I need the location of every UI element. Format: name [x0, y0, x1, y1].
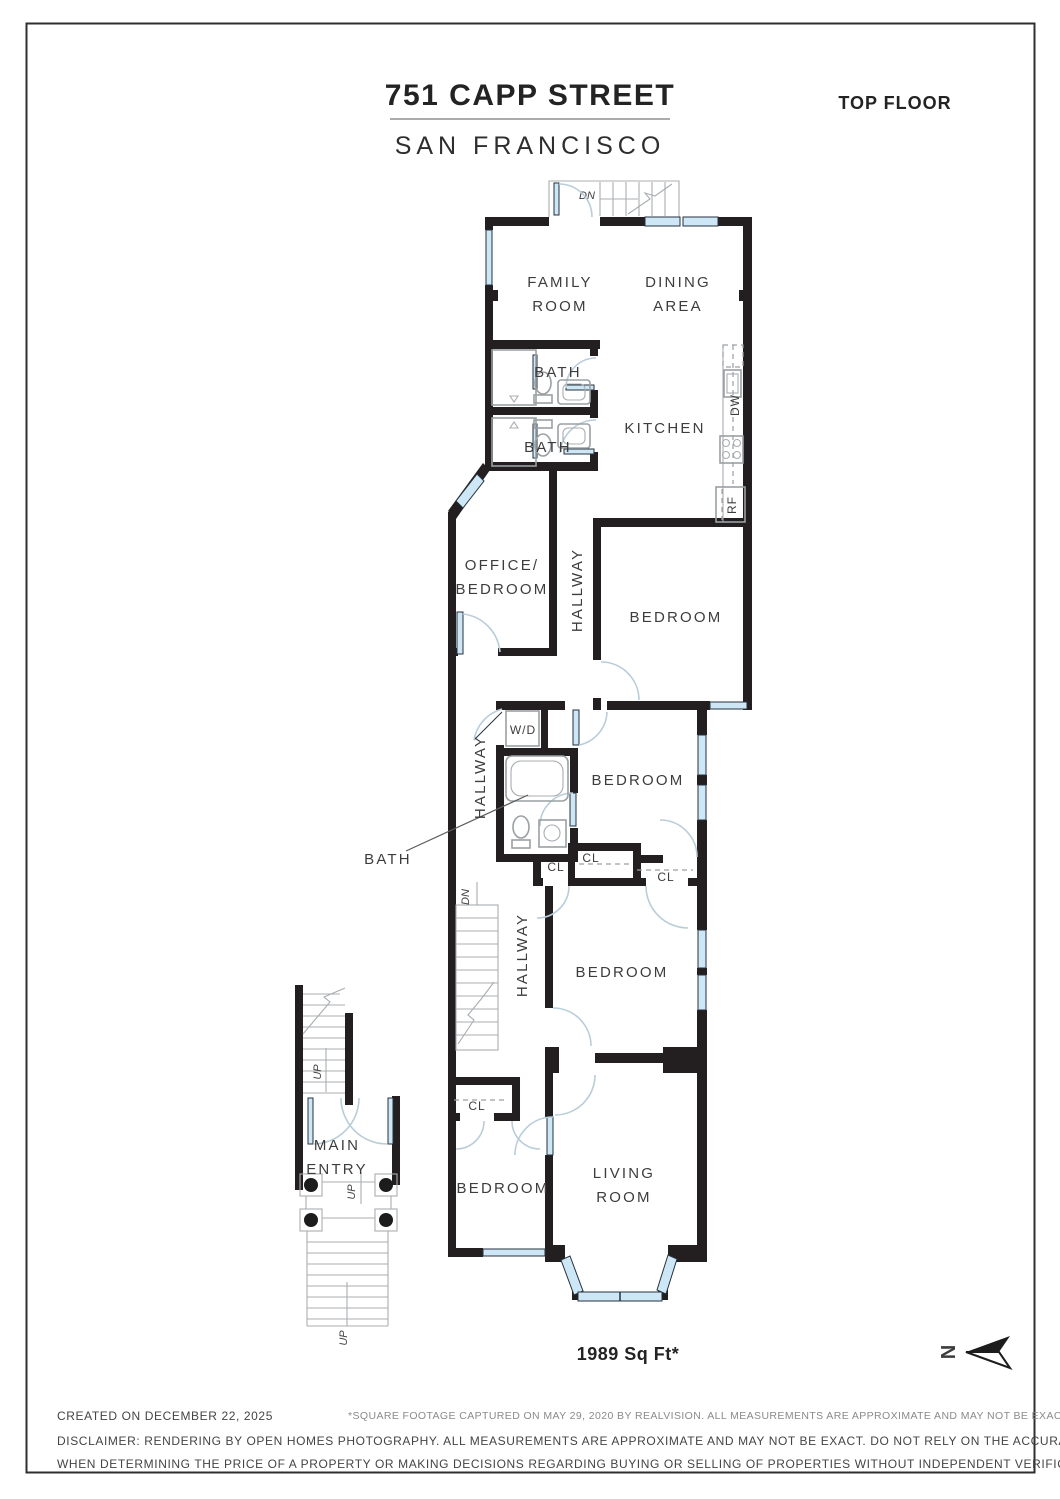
stairs-hallway: DN: [456, 882, 498, 1050]
up-label-porch: UP: [346, 1184, 358, 1200]
label-main-entry-1: MAIN: [314, 1137, 360, 1154]
label-family-room-2: ROOM: [532, 298, 587, 315]
entry-post: [304, 1178, 318, 1192]
label-bath-2: BATH: [524, 439, 572, 456]
label-main-entry-2: ENTRY: [306, 1161, 368, 1178]
label-dw: DW: [728, 394, 742, 416]
created-date: CREATED ON DECEMBER 22, 2025: [57, 1409, 273, 1423]
door-leaf-entry-right: [388, 1098, 393, 1144]
label-living-room-2: ROOM: [596, 1189, 651, 1206]
floor-plan-page: 751 CAPP STREET SAN FRANCISCO TOP FLOOR …: [0, 0, 1060, 1499]
door-leaf-top-stairs: [554, 183, 559, 215]
label-office-2: BEDROOM: [456, 581, 549, 598]
label-rf: RF: [725, 496, 739, 514]
label-cl-a: CL: [547, 860, 564, 874]
toilet-3: [513, 816, 529, 838]
label-office-1: OFFICE/: [465, 557, 540, 574]
doors: [308, 183, 697, 1155]
north-arrow-solid: [966, 1336, 1010, 1352]
page-title: 751 CAPP STREET: [385, 79, 675, 112]
label-living-room-1: LIVING: [593, 1165, 655, 1182]
label-family-room-1: FAMILY: [527, 274, 592, 291]
bath-callout-leader: [406, 795, 528, 851]
footer: CREATED ON DECEMBER 22, 2025 *SQUARE FOO…: [57, 1409, 1060, 1471]
north-arrow: N: [938, 1336, 1010, 1368]
entry-post: [304, 1213, 318, 1227]
label-hallway-mid: HALLWAY: [472, 735, 489, 819]
up-label-inner: UP: [312, 1064, 324, 1080]
sink-3: [539, 820, 566, 847]
label-cl-d: CL: [468, 1099, 485, 1113]
label-bedroom-lower: BEDROOM: [576, 964, 669, 981]
page-subtitle: SAN FRANCISCO: [395, 132, 666, 160]
label-dining-area-1: DINING: [645, 274, 711, 291]
label-bath-callout: BATH: [364, 851, 412, 868]
door-leaf-bath-middle: [570, 793, 576, 826]
floor-plan-svg: 751 CAPP STREET SAN FRANCISCO TOP FLOOR …: [0, 0, 1060, 1499]
stairs-top: DN: [549, 181, 679, 217]
label-bedroom-middle: BEDROOM: [592, 772, 685, 789]
header: 751 CAPP STREET SAN FRANCISCO TOP FLOOR: [385, 79, 952, 160]
disclaimer-line-2: WHEN DETERMINING THE PRICE OF A PROPERTY…: [57, 1457, 1060, 1471]
disclaimer-line-1: DISCLAIMER: RENDERING BY OPEN HOMES PHOT…: [57, 1434, 1060, 1448]
label-dining-area-2: AREA: [653, 298, 703, 315]
door-leaf-entry-left: [308, 1098, 313, 1144]
label-bedroom-top: BEDROOM: [630, 609, 723, 626]
label-hallway-lower: HALLWAY: [514, 913, 531, 997]
dn-label-stairs: DN: [460, 889, 472, 905]
north-arrow-outline: [966, 1352, 1010, 1368]
label-bedroom-bottom: BEDROOM: [457, 1180, 550, 1197]
shower-1: [492, 350, 536, 405]
up-label-outer: UP: [338, 1330, 350, 1346]
label-bath-top: BATH: [534, 364, 582, 381]
entry-post: [379, 1178, 393, 1192]
label-cl-c: CL: [657, 870, 674, 884]
label-wd: W/D: [510, 723, 536, 737]
north-letter: N: [938, 1345, 960, 1359]
door-leaf-bedroom-middle: [573, 710, 579, 745]
label-kitchen: KITCHEN: [624, 420, 705, 437]
label-cl-b: CL: [582, 851, 599, 865]
door-leaf-bedroom-bottom: [547, 1117, 553, 1155]
sqft-note: *SQUARE FOOTAGE CAPTURED ON MAY 29, 2020…: [348, 1410, 1060, 1422]
label-hallway-upper: HALLWAY: [569, 548, 586, 632]
entry-post: [379, 1213, 393, 1227]
door-leaf-office: [457, 612, 463, 654]
area-label: 1989 Sq Ft*: [577, 1344, 680, 1364]
floor-label: TOP FLOOR: [838, 93, 951, 113]
